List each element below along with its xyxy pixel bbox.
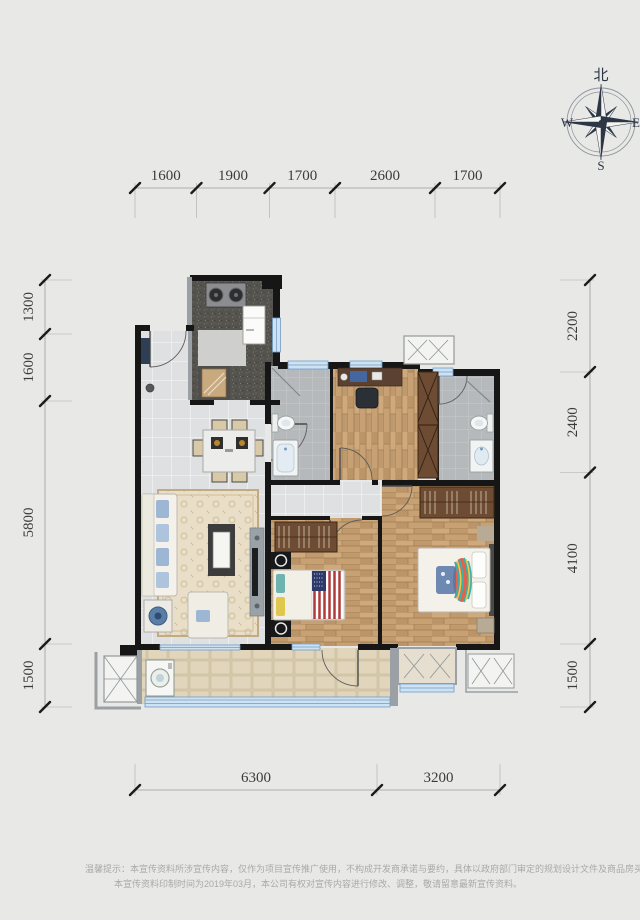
sofa-pillow <box>156 524 169 542</box>
kitchen-window <box>273 318 281 352</box>
bathtub <box>273 440 298 476</box>
tv-cabinet <box>250 528 264 616</box>
nightstand <box>477 618 494 633</box>
side-table-lamp <box>144 600 172 632</box>
dim-right-1: 2200 <box>565 311 581 341</box>
compass-west-label: W <box>561 115 574 130</box>
floor-plan-drawing: 北 W E S 1600 1900 1700 2600 1700 6300 32… <box>0 0 640 920</box>
dim-top-5: 1700 <box>453 168 483 184</box>
hallway-floor <box>271 482 382 518</box>
dimension-left: 1300 1600 5800 1500 <box>21 275 72 712</box>
bedroom2 <box>271 522 345 637</box>
disclaimer: 温馨提示：本宣传资料所涉宣传内容，仅作为项目宣传推广使用，不构成开发商承诺与要约… <box>85 862 640 892</box>
compass-rose-icon <box>563 84 639 160</box>
sofa <box>142 494 177 596</box>
laptop <box>372 372 382 380</box>
kitchen-walkway <box>198 330 246 366</box>
dim-top-1: 1600 <box>151 168 181 184</box>
sofa-pillow <box>156 500 169 518</box>
living-balcony-slider <box>160 645 240 650</box>
master-bedroom <box>418 487 494 633</box>
shoe-cabinet <box>141 338 150 364</box>
dim-bottom-2: 3200 <box>424 770 454 786</box>
stove <box>206 283 246 307</box>
coffee-table <box>208 524 235 576</box>
balcony-window-band <box>145 697 390 707</box>
disclaimer-line-1: 温馨提示：本宣传资料所涉宣传内容，仅作为项目宣传推广使用，不构成开发商承诺与要约… <box>85 862 640 877</box>
floor-plan-page: 北 W E S 1600 1900 1700 2600 1700 6300 32… <box>0 0 640 920</box>
desk <box>338 368 402 386</box>
dim-bottom-1: 6300 <box>241 770 271 786</box>
dim-top-3: 1700 <box>287 168 317 184</box>
washing-machine <box>146 660 174 696</box>
armchair <box>188 592 228 638</box>
dim-top-4: 2600 <box>370 168 400 184</box>
balcony-floor <box>141 648 392 704</box>
bay-window <box>398 648 456 692</box>
sofa-pillow <box>156 548 169 566</box>
compass-east-label: E <box>632 115 640 130</box>
compass-south-label: S <box>597 158 604 173</box>
bathroom1-window <box>288 361 328 369</box>
master-wardrobe <box>420 487 494 518</box>
disclaimer-line-2: 本宣传资料印制时间为2019年03月，本公司有权对宣传内容进行修改、调整，敬请留… <box>114 877 640 892</box>
living-room <box>142 490 264 638</box>
dimension-top: 1600 1900 1700 2600 1700 <box>130 168 505 218</box>
bedroom2-window <box>292 644 320 650</box>
tv <box>252 548 258 596</box>
dim-right-3: 4100 <box>565 543 581 573</box>
study-wardrobe <box>418 372 438 478</box>
dim-left-3: 5800 <box>21 508 37 538</box>
dim-left-1: 1300 <box>21 292 37 322</box>
pillow <box>472 582 486 608</box>
equipment-platform-top-right <box>404 336 454 364</box>
sofa-pillow <box>156 572 169 588</box>
bedroom2-wardrobe <box>275 522 337 552</box>
dimension-bottom: 6300 3200 <box>130 764 505 795</box>
flag-blanket <box>312 571 344 619</box>
dining-chair <box>232 472 247 482</box>
dim-right-2: 2400 <box>565 407 581 437</box>
stool <box>146 384 154 392</box>
refrigerator <box>243 306 265 344</box>
desk-chair <box>356 388 378 408</box>
dim-left-4: 1500 <box>21 661 37 691</box>
dining-chair <box>212 420 227 430</box>
vanity-sink <box>470 440 493 472</box>
dim-top-2: 1900 <box>218 168 248 184</box>
dimension-right: 2200 2400 4100 1500 <box>560 275 595 712</box>
nightstand <box>477 526 494 541</box>
bedroom2-bed <box>273 570 345 620</box>
equipment-platform-bottom-left <box>96 652 141 708</box>
pillow <box>472 552 486 578</box>
dining-chair <box>212 472 227 482</box>
pillow <box>276 574 285 593</box>
dim-right-4: 1500 <box>565 661 581 691</box>
compass: 北 W E S <box>561 67 640 173</box>
dining-chair <box>232 420 247 430</box>
dining-chair <box>193 440 203 456</box>
desk-mat <box>350 371 367 382</box>
dim-left-2: 1600 <box>21 353 37 383</box>
compass-north-label: 北 <box>593 67 608 84</box>
equipment-platform-bottom-right <box>466 650 518 692</box>
pillow <box>276 597 285 616</box>
bed-runner <box>436 566 456 594</box>
balcony <box>146 660 174 696</box>
cutting-board <box>198 366 230 400</box>
master-bed <box>418 544 494 616</box>
